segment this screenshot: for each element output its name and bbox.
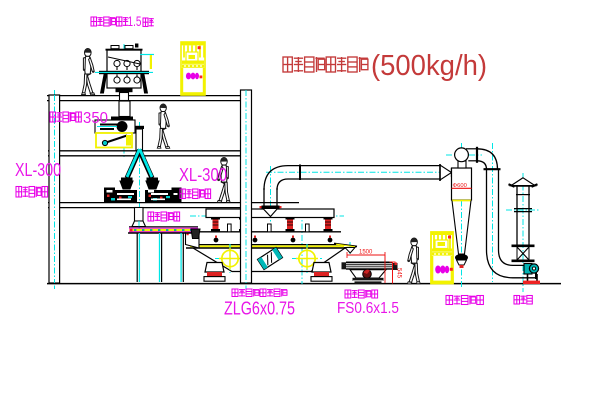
svg-text:XL-300: XL-300 <box>179 165 227 185</box>
svg-text:(500kg/h): (500kg/h) <box>371 50 487 82</box>
svg-text:FS0.6x1.5: FS0.6x1.5 <box>337 300 399 317</box>
svg-text:XL-300: XL-300 <box>15 160 61 180</box>
svg-text:ZLG6x0.75: ZLG6x0.75 <box>224 298 295 319</box>
svg-text:1500: 1500 <box>359 249 373 255</box>
svg-text:350: 350 <box>83 110 108 127</box>
svg-text:1.5: 1.5 <box>128 14 142 29</box>
svg-text:545: 545 <box>396 268 402 279</box>
